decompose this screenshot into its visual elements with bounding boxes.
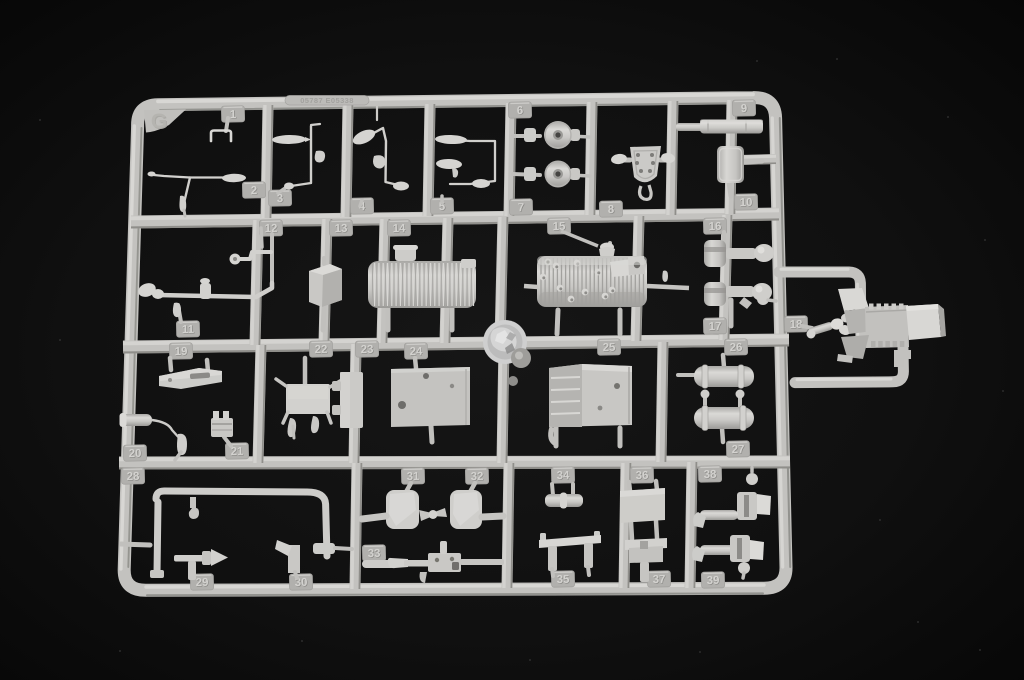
- svg-text:3: 3: [277, 193, 284, 205]
- svg-text:39: 39: [706, 575, 719, 587]
- svg-text:8: 8: [608, 204, 615, 216]
- svg-text:9: 9: [741, 103, 748, 115]
- svg-text:20: 20: [128, 448, 141, 460]
- svg-text:23: 23: [360, 344, 373, 356]
- svg-text:29: 29: [195, 577, 208, 589]
- svg-text:7: 7: [518, 202, 525, 214]
- svg-text:34: 34: [556, 470, 570, 482]
- svg-text:25: 25: [602, 342, 616, 354]
- svg-text:28: 28: [126, 471, 140, 483]
- svg-text:19: 19: [174, 346, 187, 358]
- svg-text:11: 11: [182, 324, 195, 336]
- svg-text:05787 E05338: 05787 E05338: [300, 96, 354, 105]
- svg-text:2: 2: [251, 185, 258, 197]
- svg-text:33: 33: [367, 548, 380, 560]
- svg-text:35: 35: [556, 574, 570, 586]
- svg-text:17: 17: [708, 321, 721, 333]
- svg-text:31: 31: [406, 471, 420, 483]
- svg-text:1: 1: [230, 109, 237, 121]
- svg-text:16: 16: [708, 221, 721, 233]
- svg-text:G: G: [151, 110, 167, 133]
- svg-text:26: 26: [729, 342, 742, 354]
- svg-text:13: 13: [334, 223, 347, 235]
- svg-text:27: 27: [731, 444, 744, 456]
- svg-text:21: 21: [230, 446, 244, 458]
- svg-text:38: 38: [703, 469, 717, 481]
- svg-text:37: 37: [652, 574, 665, 586]
- svg-text:14: 14: [392, 223, 406, 235]
- svg-text:36: 36: [635, 470, 648, 482]
- svg-text:6: 6: [517, 105, 524, 117]
- svg-text:22: 22: [314, 344, 327, 356]
- svg-text:10: 10: [739, 197, 752, 209]
- svg-text:32: 32: [470, 471, 483, 483]
